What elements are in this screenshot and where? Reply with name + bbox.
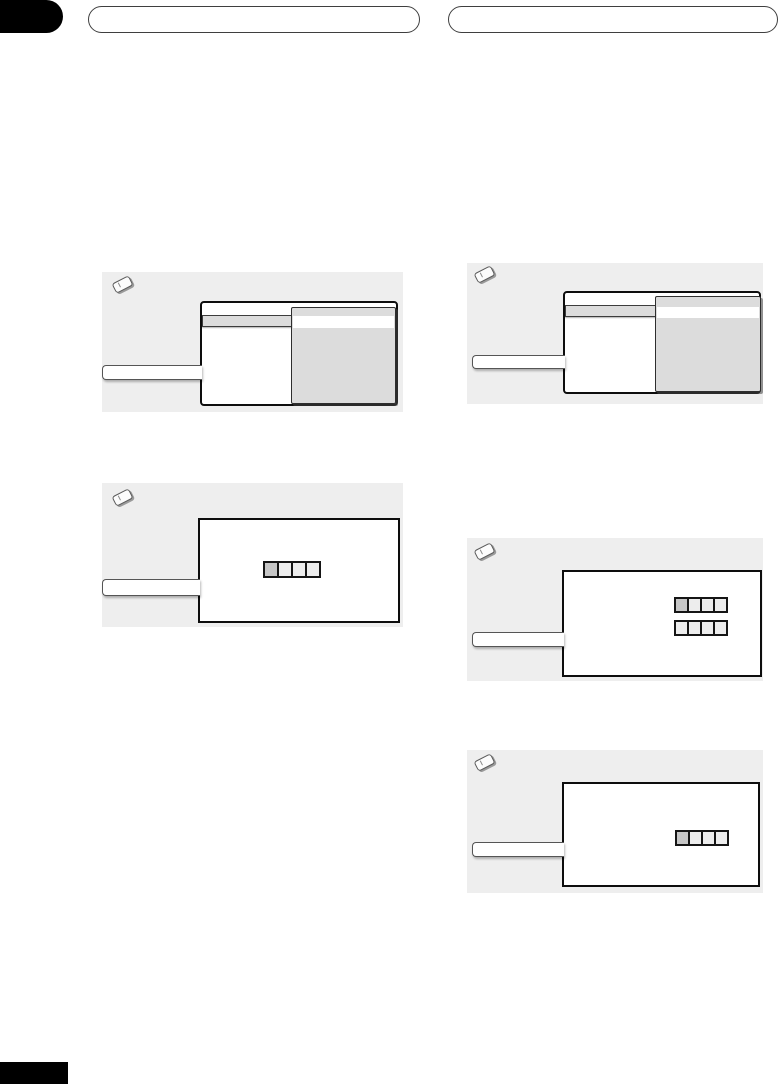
pencil-note-icon (474, 753, 496, 771)
pencil-note-icon (474, 265, 496, 283)
page-number-block (0, 1062, 68, 1084)
option-square (713, 620, 728, 636)
header-title-pill-left (88, 6, 420, 33)
osd-option-square-row (675, 830, 729, 846)
osd-submenu-selected-row (657, 307, 759, 318)
osd-submenu-panel (655, 296, 761, 392)
pencil-note-icon (474, 542, 496, 560)
osd-option-square-row (263, 561, 321, 578)
osd-highlighted-menu-row (202, 315, 293, 327)
callout-label-bar (472, 842, 564, 857)
osd-screen-right-2 (562, 570, 762, 677)
option-square (714, 830, 729, 846)
osd-screen-right-3 (562, 782, 760, 887)
osd-option-square-row (674, 620, 728, 636)
manual-page (0, 0, 783, 1084)
osd-submenu-panel (291, 307, 396, 404)
osd-option-square-row (674, 597, 728, 613)
pencil-note-icon (112, 488, 134, 506)
option-square (305, 561, 321, 578)
header-title-pill-right (448, 6, 778, 33)
callout-label-bar (102, 579, 200, 596)
osd-highlighted-menu-row (565, 305, 657, 317)
osd-submenu-selected-row (293, 316, 394, 328)
callout-label-bar (472, 355, 565, 369)
pencil-note-icon (112, 275, 134, 293)
option-square (713, 597, 728, 613)
callout-label-bar (102, 365, 202, 380)
callout-label-bar (472, 632, 564, 647)
page-corner-tab (0, 0, 63, 33)
